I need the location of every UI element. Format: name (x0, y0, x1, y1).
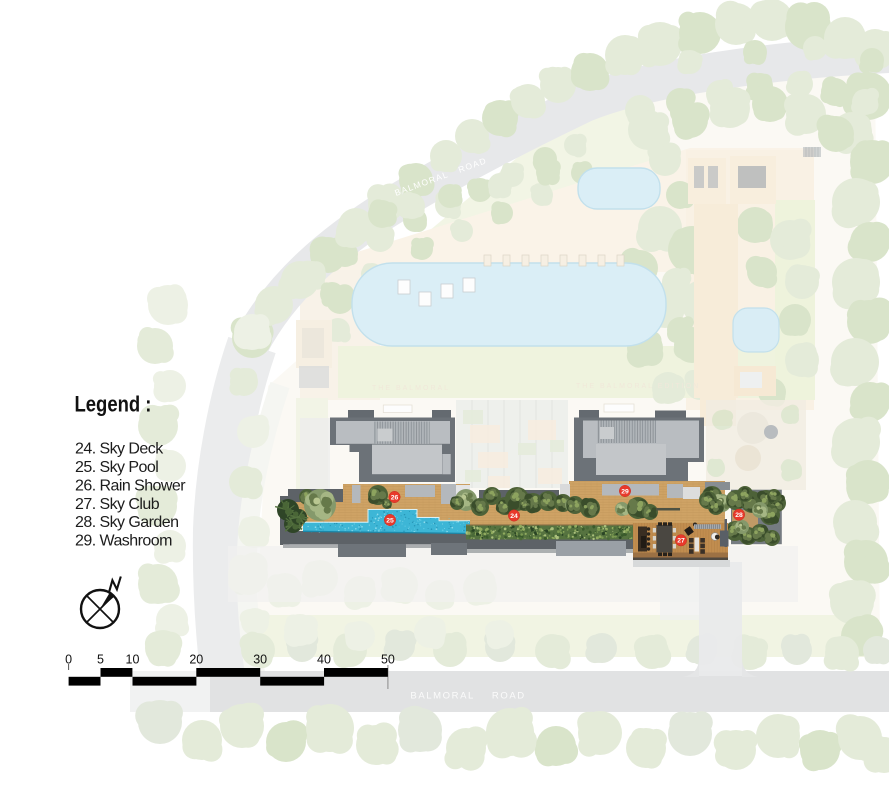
svg-text:10: 10 (126, 653, 140, 667)
svg-text:THE BALMORAL EDITION: THE BALMORAL EDITION (576, 383, 700, 390)
svg-text:Legend :: Legend : (75, 393, 152, 417)
svg-text:29. Washroom: 29. Washroom (75, 533, 172, 550)
svg-text:50: 50 (381, 653, 395, 667)
svg-text:BALMORAL ROAD: BALMORAL ROAD (410, 690, 525, 701)
svg-text:27. Sky Club: 27. Sky Club (75, 496, 160, 513)
svg-text:29: 29 (621, 488, 629, 495)
svg-text:40: 40 (317, 653, 331, 667)
svg-text:THE BALMORAL: THE BALMORAL (372, 385, 450, 392)
svg-text:20: 20 (189, 653, 203, 667)
svg-text:28. Sky Garden: 28. Sky Garden (75, 514, 178, 531)
svg-text:25: 25 (386, 517, 394, 524)
svg-text:5: 5 (97, 653, 104, 667)
svg-text:28: 28 (735, 512, 743, 519)
svg-text:26. Rain Shower: 26. Rain Shower (75, 477, 186, 494)
svg-text:26: 26 (391, 494, 399, 501)
svg-text:25. Sky Pool: 25. Sky Pool (75, 459, 158, 476)
svg-text:27: 27 (677, 538, 685, 545)
svg-text:24: 24 (510, 513, 518, 520)
svg-text:24. Sky Deck: 24. Sky Deck (75, 441, 164, 458)
svg-text:30: 30 (253, 653, 267, 667)
